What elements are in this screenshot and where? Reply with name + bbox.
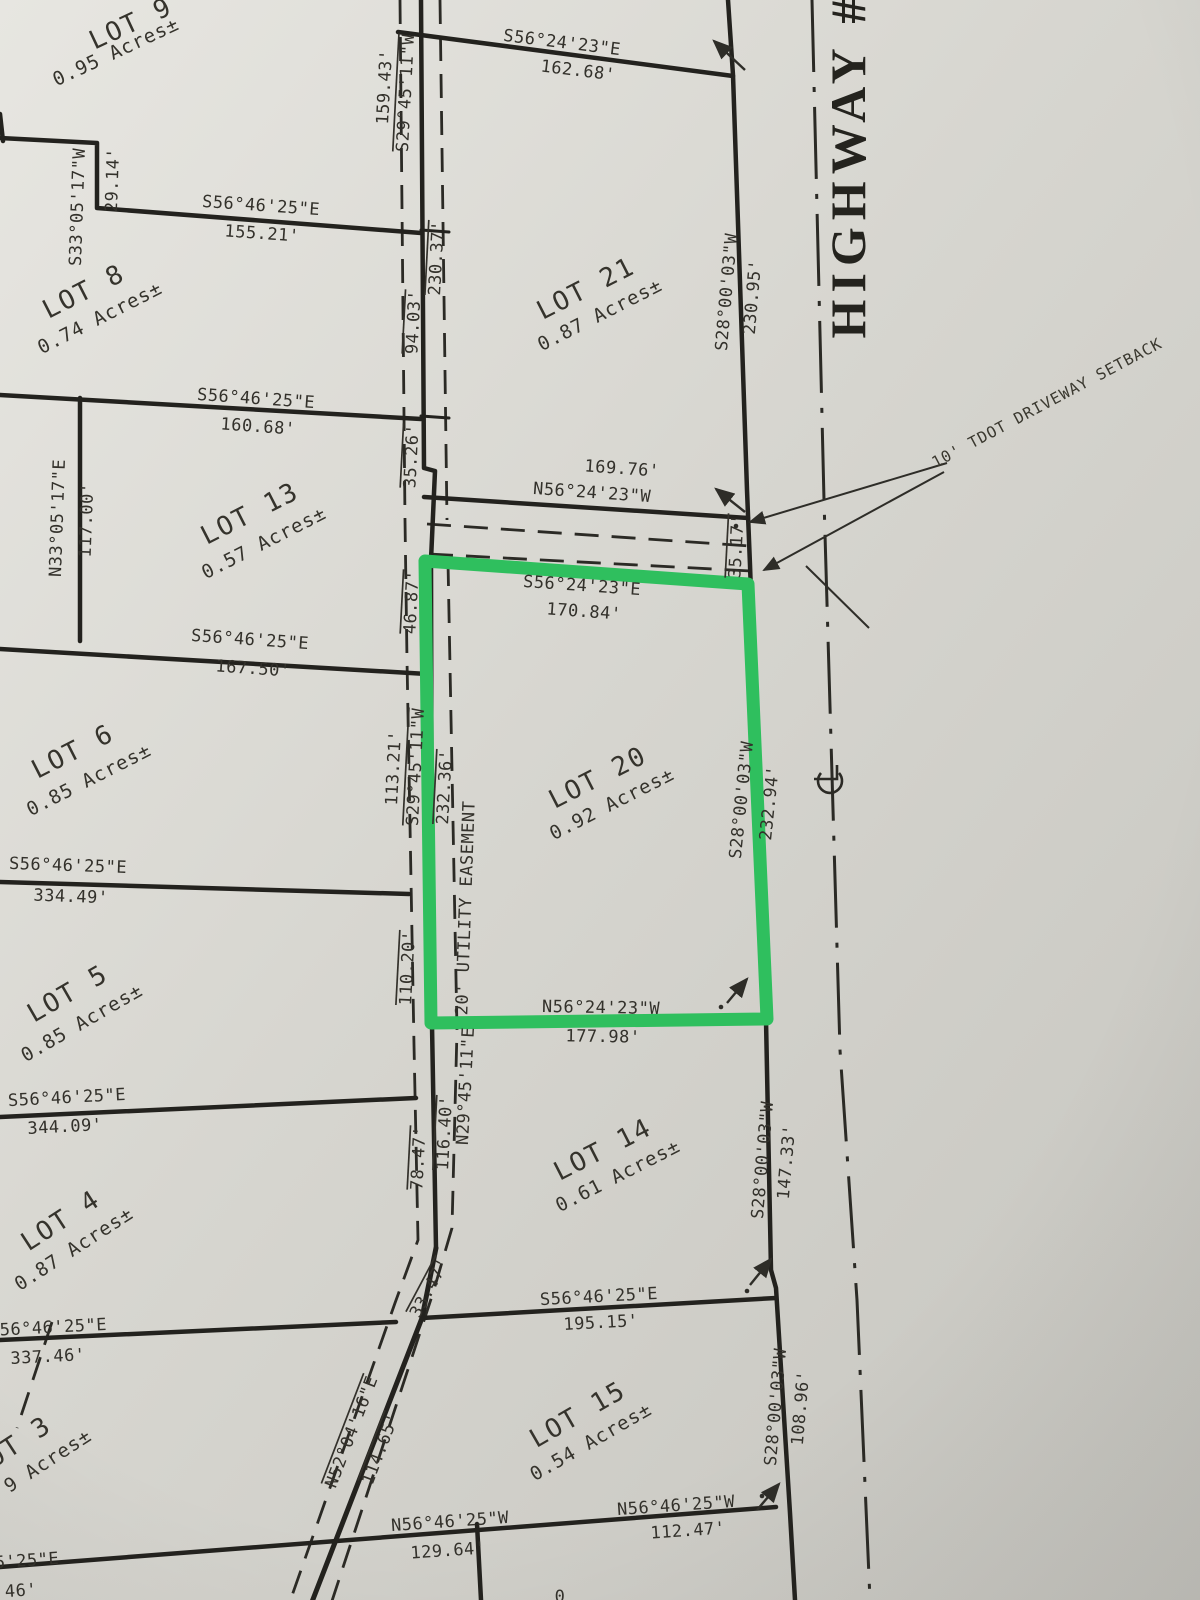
highway-label: HIGHWAY #	[820, 0, 876, 338]
dim-partial-46: 46'	[4, 1580, 38, 1600]
dim-29-14: 29.14'	[102, 147, 124, 212]
dim-78-47: 78.47'	[407, 1125, 430, 1190]
plat-svg: LOT 90.95 Acres±LOT 80.74 Acres±LOT 130.…	[0, 0, 1200, 1600]
dim-bearing-n562423w-177: N56°24'23"W	[542, 997, 661, 1019]
dim-bearing-s330517w: S33°05'17"W	[66, 147, 90, 266]
dim-177-98: 177.98'	[565, 1026, 640, 1047]
dim-116-40: 116.40'	[433, 1095, 457, 1171]
arrow-dot-3	[760, 1494, 765, 1499]
plat-map-scan: LOT 90.95 Acres±LOT 80.74 Acres±LOT 130.…	[0, 0, 1200, 1600]
dim-113-21: 113.21'	[382, 730, 406, 806]
partial-bottom-text: 0	[555, 1587, 566, 1600]
arrow-dot-1	[719, 1005, 724, 1010]
dim-bearing-334: S56°46'25"E	[9, 854, 128, 878]
dim-337-46: 337.46'	[10, 1345, 86, 1369]
dim-94-03: 94.03'	[402, 289, 425, 354]
dim-110-20: 110.20'	[396, 930, 420, 1006]
arrow-dot-2	[745, 1289, 750, 1294]
dim-35-26: 35.26'	[400, 423, 423, 488]
dim-344-09: 344.09'	[27, 1115, 103, 1139]
tick-160	[421, 416, 449, 418]
dim-117-00: 117.00'	[76, 482, 99, 558]
dim-35-17: 35.17'	[725, 513, 748, 578]
dim-232-36: 232.36'	[433, 749, 457, 825]
dim-bearing-n330517e: N33°05'17"E	[46, 459, 70, 578]
dim-46-87: 46.87'	[400, 569, 423, 634]
dim-334-49: 334.49'	[33, 886, 109, 909]
dim-195-15: 195.15'	[563, 1311, 639, 1335]
dim-230-37: 230.37'	[425, 220, 449, 296]
dim-159-43: 159.43'	[373, 49, 397, 125]
